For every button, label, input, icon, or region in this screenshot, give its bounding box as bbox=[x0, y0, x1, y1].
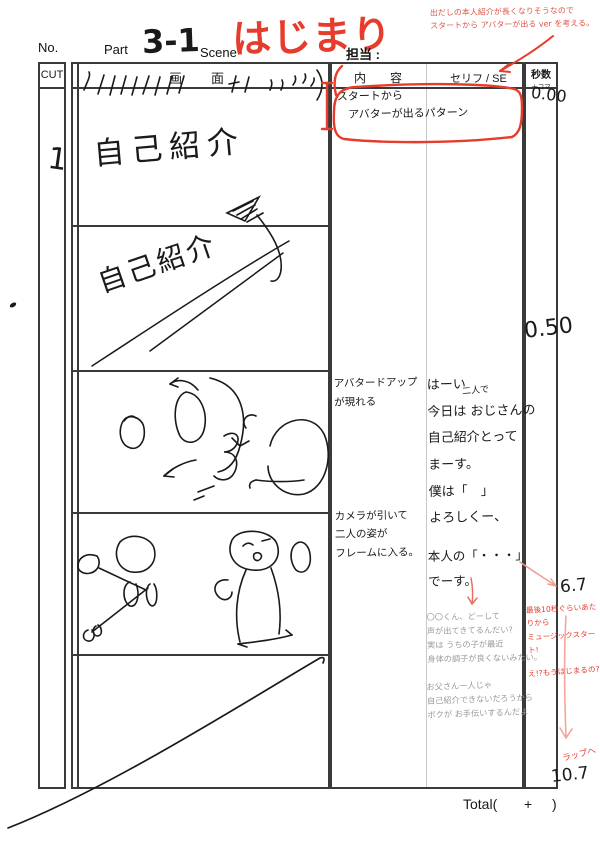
dialogue-pencil-1: 〇〇くん、どーして 声が出てきてるんだい? 実は うちの子が最近 身体の調子が良… bbox=[427, 609, 543, 667]
screen-column-header: 画 面 bbox=[73, 64, 328, 89]
dialogue-main: はーい 今日は おじさんの 自己紹介とって まーす。 僕は「 」 よろしくー、 bbox=[427, 371, 538, 533]
no-label: No. bbox=[38, 40, 58, 55]
timing-value-2: 0.50 bbox=[523, 313, 575, 344]
dialogue-header-label: セリフ / SE bbox=[450, 70, 507, 86]
content-note-camera: カメラが引いて 二人の姿が フレームに入る。 bbox=[335, 506, 420, 563]
content-note-boxed: スタートから アバターが出るパターン bbox=[337, 86, 469, 123]
content-header-label: 内 容 bbox=[354, 69, 408, 86]
total-label: Total( bbox=[463, 796, 497, 812]
content-note-avatar-up: アバタードアップ が現れる bbox=[334, 373, 418, 413]
assignee-label: 担当 : bbox=[346, 44, 380, 63]
scene-label: Scene bbox=[200, 45, 237, 60]
ink-dot bbox=[9, 302, 17, 309]
panel-divider-2 bbox=[73, 370, 328, 372]
screen-double-border bbox=[77, 64, 79, 787]
dialogue-main2: 本人の「・・・」 でーす。 bbox=[428, 542, 529, 594]
red-margin-note-top: 出だしの本人紹介が長くなりそうなので スタートから アバターが出る ver を考… bbox=[430, 5, 598, 34]
storyboard-sheet: No. Part 3-1 Scene はじまり 担当 : 出だしの本人紹介が長く… bbox=[0, 0, 600, 849]
dialogue-pencil-2: お父さん一人じゃ 自己紹介できないだろうから ボクが お手伝いするんだよ bbox=[426, 677, 533, 722]
part-value-handwritten: 3-1 bbox=[141, 21, 200, 61]
red-note-music-start: 最後10秒ぐらいあたりから ミュージックスタート! bbox=[526, 600, 600, 657]
cut-column-header: CUT bbox=[40, 64, 64, 89]
seconds-header-label: 秒数 bbox=[526, 66, 556, 81]
red-note-wrap: ラップへ bbox=[561, 744, 597, 764]
timing-value-4: 10.7 bbox=[550, 763, 590, 787]
panel-divider-3 bbox=[73, 512, 328, 514]
content-dialogue-header: 内 容 セリフ / SE bbox=[332, 64, 522, 89]
timing-value-3: 6.7 bbox=[559, 575, 588, 598]
total-close-paren: ) bbox=[552, 796, 557, 812]
total-plus: + bbox=[524, 796, 532, 812]
panel-divider-4 bbox=[73, 654, 328, 656]
part-label: Part bbox=[104, 42, 128, 57]
